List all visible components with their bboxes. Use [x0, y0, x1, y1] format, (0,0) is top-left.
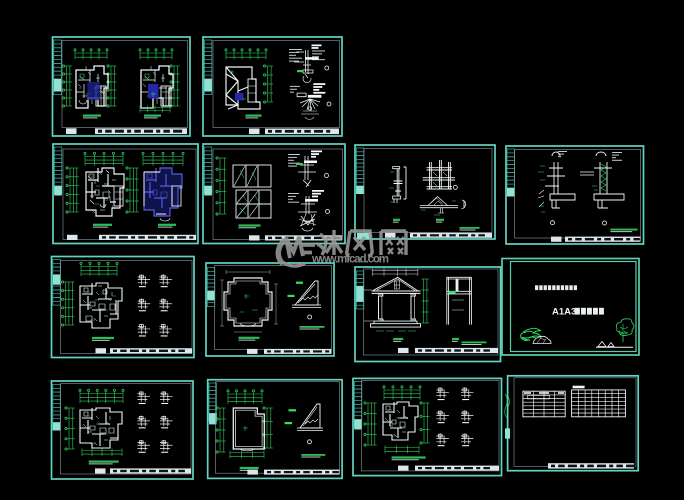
- svg-text:A1A3: A1A3: [552, 307, 576, 318]
- svg-text:www.mfcad.com: www.mfcad.com: [311, 254, 389, 266]
